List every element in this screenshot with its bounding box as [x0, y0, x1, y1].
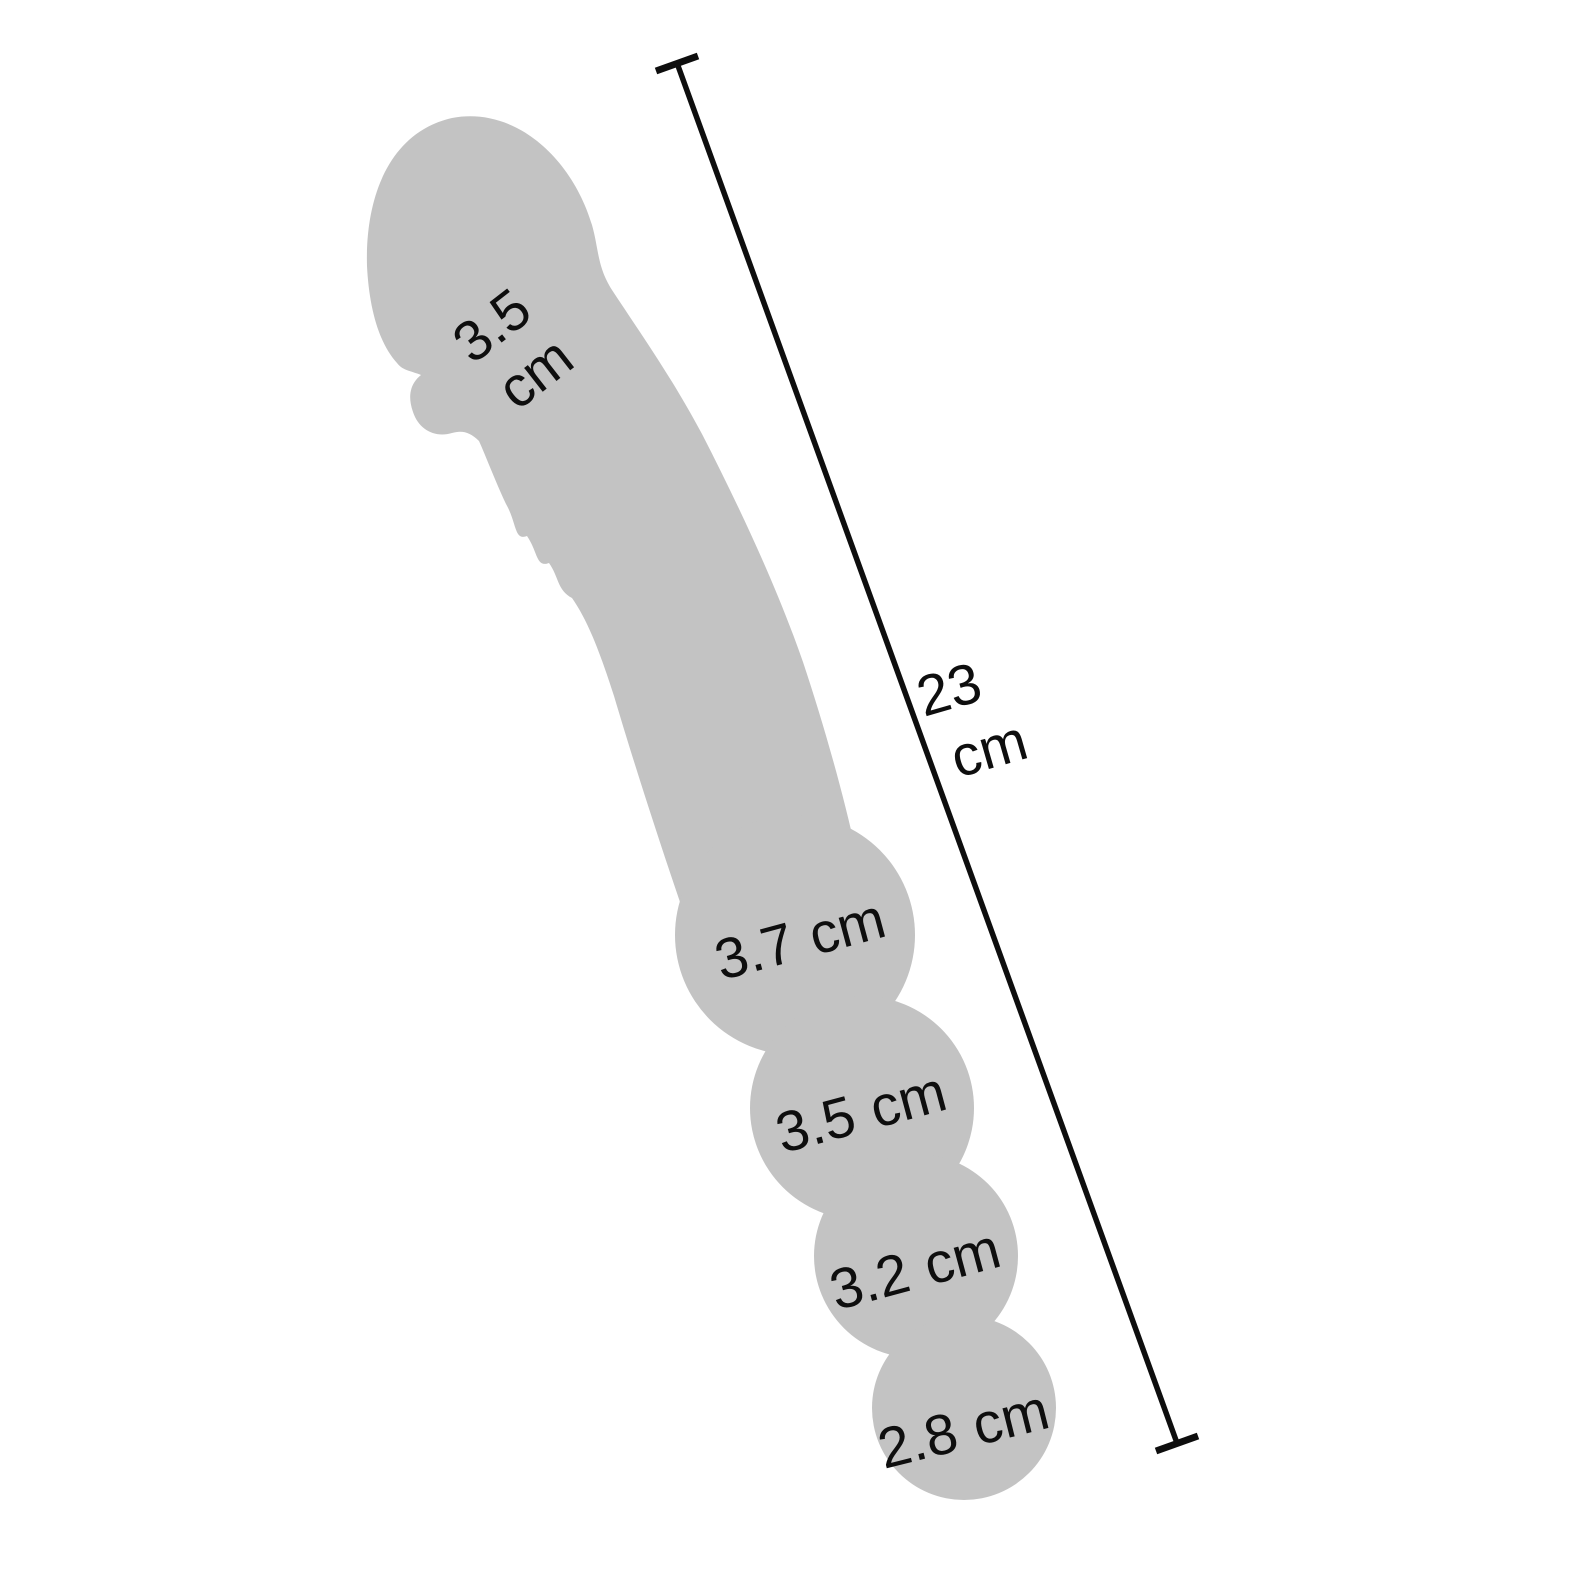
total-length-value: 23 [910, 650, 989, 729]
dimension-diagram: 3.5 cm 23 cm 3.7cm 3.5cm 3.2cm 2.8cm [0, 0, 1586, 1586]
total-length-label: 23 cm [910, 643, 1034, 795]
figure-canvas: 3.5 cm 23 cm 3.7cm 3.5cm 3.2cm 2.8cm [0, 0, 1586, 1586]
